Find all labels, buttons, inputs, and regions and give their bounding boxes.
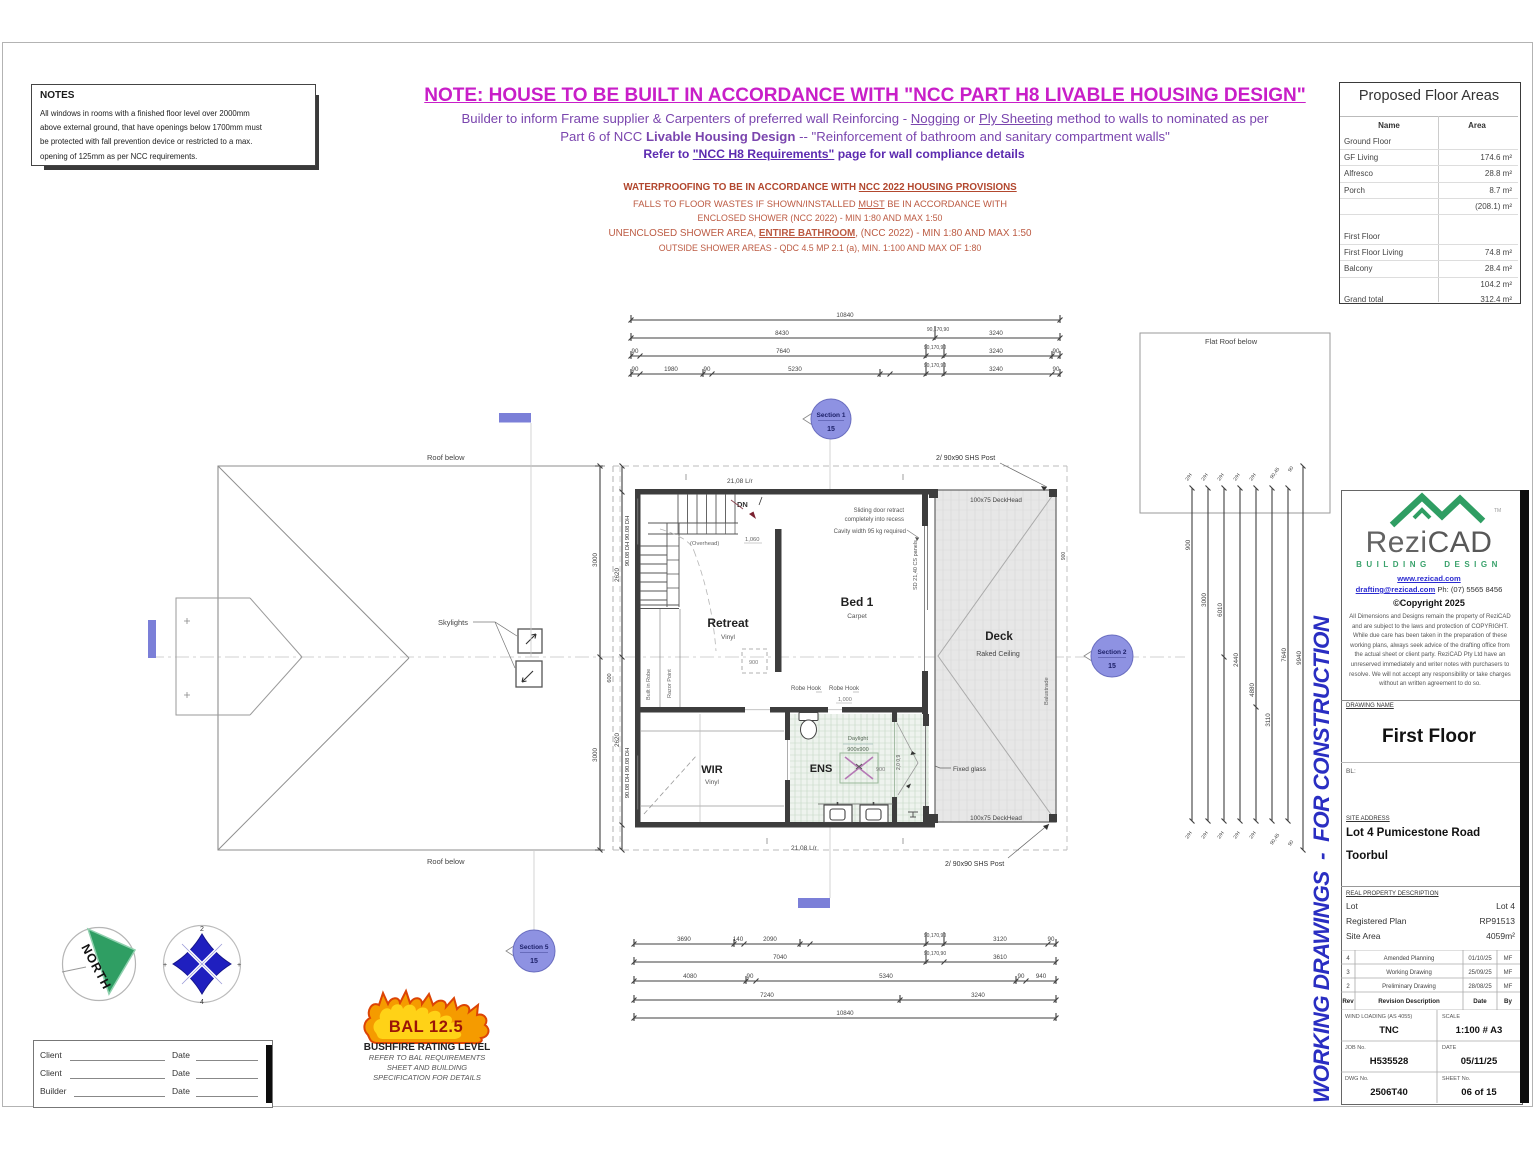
svg-text:2: 2 [200,926,204,933]
svg-text:15: 15 [530,958,538,965]
svg-text:Daylight: Daylight [848,736,869,742]
svg-text:Roof below: Roof below [427,453,465,462]
svg-text:90,45: 90,45 [1269,832,1281,846]
svg-text:Cavity width 95 kg required: Cavity width 95 kg required [834,529,906,535]
svg-text:5230: 5230 [788,366,802,373]
svg-text:90.08 DH 90.08 DH: 90.08 DH 90.08 DH [625,516,631,567]
svg-text:MF: MF [1504,970,1513,976]
svg-text:90: 90 [632,348,639,355]
svg-text:90: 90 [1053,348,1060,355]
svg-text:3610: 3610 [993,954,1007,961]
svg-text:3690: 3690 [677,936,691,943]
svg-text:1,000: 1,000 [838,697,852,703]
svg-text:4880: 4880 [1249,683,1256,697]
svg-text:completely into recess: completely into recess [845,517,904,523]
svg-text:TNC: TNC [1379,1025,1399,1036]
svg-text:1,060: 1,060 [745,537,760,543]
svg-text:10840: 10840 [836,1010,854,1017]
svg-text:Rev: Rev [1342,998,1354,1005]
svg-text:BAL 12.5: BAL 12.5 [389,1018,463,1036]
svg-text:Sliding door retract: Sliding door retract [854,508,905,514]
svg-text:2/H: 2/H [1248,830,1258,840]
svg-text:Robe Hook: Robe Hook [791,686,822,692]
svg-text:900: 900 [749,660,758,666]
svg-text:8430: 8430 [775,330,789,337]
svg-text:3240: 3240 [989,330,1003,337]
svg-text:7040: 7040 [773,954,787,961]
svg-text:4: 4 [1346,956,1350,962]
svg-text:Preliminary Drawing: Preliminary Drawing [1382,984,1436,990]
svg-text:Section 1: Section 1 [817,412,846,419]
svg-text:2/ 90x90 SHS Post: 2/ 90x90 SHS Post [936,455,995,462]
svg-text:90: 90 [747,973,754,980]
svg-text:940: 940 [1036,973,1047,980]
svg-text:By: By [1504,998,1512,1005]
svg-text:2506T40: 2506T40 [1370,1087,1408,1098]
svg-text:Robe Hook: Robe Hook [829,686,860,692]
svg-text:Balustrade: Balustrade [1044,677,1050,705]
svg-text:SD 21,40 CS panels: SD 21,40 CS panels [913,540,919,590]
svg-text:9940: 9940 [1296,651,1303,665]
svg-text:600: 600 [607,673,613,682]
svg-text:MF: MF [1504,984,1513,990]
svg-text:7640: 7640 [1281,648,1288,662]
svg-text:Skylights: Skylights [438,618,468,627]
svg-text:2/H: 2/H [1200,830,1210,840]
svg-text:3110: 3110 [1265,713,1272,727]
svg-text:7240: 7240 [760,992,774,999]
svg-text:2620: 2620 [614,733,621,747]
svg-text:WIR: WIR [701,764,722,776]
svg-text:2440: 2440 [1233,653,1240,667]
svg-text:2/H: 2/H [1232,830,1242,840]
svg-text:Deck: Deck [985,631,1013,643]
svg-text:90: 90 [1048,936,1055,943]
svg-text:SCALE: SCALE [1442,1014,1460,1020]
svg-text:900: 900 [1185,539,1192,550]
svg-text:Date: Date [1473,998,1487,1005]
svg-text:H535528: H535528 [1370,1056,1409,1067]
svg-text:DN: DN [737,500,748,509]
svg-text:Built in Robe: Built in Robe [646,669,652,700]
svg-text:90,170,90: 90,170,90 [924,363,946,369]
svg-text:90: 90 [1018,973,1025,980]
svg-text:05/11/25: 05/11/25 [1461,1056,1498,1067]
svg-text:DWG No.: DWG No. [1345,1076,1369,1082]
svg-text:10840: 10840 [836,312,854,319]
svg-text:3: 3 [1346,970,1350,976]
svg-text:90,170,90: 90,170,90 [924,933,946,939]
svg-text:Raked Ceiling: Raked Ceiling [976,651,1020,658]
svg-text:90: 90 [704,366,711,373]
svg-text:21,08 L/r: 21,08 L/r [727,478,753,485]
svg-text:+: + [163,962,167,969]
svg-text:6010: 6010 [1217,603,1224,617]
svg-text:3000: 3000 [592,748,599,762]
svg-text:4: 4 [200,999,204,1006]
svg-text:1980: 1980 [664,366,678,373]
svg-text:90: 90 [632,366,639,373]
svg-text:90,170,90: 90,170,90 [924,345,946,351]
svg-text:Section 2: Section 2 [1098,649,1127,656]
svg-text:2620: 2620 [614,568,621,582]
svg-text:3120: 3120 [993,936,1007,943]
svg-text:900: 900 [1061,552,1067,561]
svg-text:Vinyl: Vinyl [721,634,736,641]
svg-text:3000: 3000 [592,553,599,567]
svg-text:140: 140 [733,936,744,943]
svg-text:100x75 DeckHead: 100x75 DeckHead [970,815,1022,822]
svg-text:2090: 2090 [763,936,777,943]
svg-text:25/09/25: 25/09/25 [1468,970,1492,976]
svg-text:900: 900 [876,767,885,773]
svg-text:Amended Planning: Amended Planning [1384,956,1435,962]
svg-text:3000: 3000 [1201,593,1208,607]
svg-text:7640: 7640 [776,348,790,355]
svg-text:Flat Roof below: Flat Roof below [1205,337,1258,346]
svg-text:3240: 3240 [989,366,1003,373]
svg-text:Roof below: Roof below [427,857,465,866]
svg-text:100x75 DeckHead: 100x75 DeckHead [970,497,1022,504]
svg-text:15: 15 [827,426,835,433]
svg-text:90,170,90: 90,170,90 [927,327,949,333]
svg-text:MF: MF [1504,956,1513,962]
svg-text:5340: 5340 [879,973,893,980]
svg-text:90: 90 [1287,839,1295,847]
svg-text:15: 15 [1108,663,1116,670]
svg-text:06 of 15: 06 of 15 [1461,1087,1497,1098]
svg-text:Fixed glass: Fixed glass [953,766,987,773]
svg-text:3240: 3240 [971,992,985,999]
svg-text:Retreat: Retreat [707,616,748,630]
svg-text:28/08/25: 28/08/25 [1468,984,1492,990]
svg-text:Bed 1: Bed 1 [841,595,874,609]
svg-text:2/H: 2/H [1216,830,1226,840]
svg-text:WIND LOADING (AS 4055): WIND LOADING (AS 4055) [1345,1014,1412,1020]
svg-text:(Overhead): (Overhead) [690,541,719,547]
svg-text:4080: 4080 [683,973,697,980]
svg-text:2,0 0,9: 2,0 0,9 [896,754,902,770]
svg-text:90.08 DH 90.08 DH: 90.08 DH 90.08 DH [625,748,631,799]
svg-text:2: 2 [1346,984,1350,990]
svg-text:JOB No.: JOB No. [1345,1045,1366,1051]
svg-text:Razor Point: Razor Point [667,669,673,698]
svg-text:+: + [237,962,241,969]
svg-text:Revision Description: Revision Description [1378,998,1440,1005]
svg-text:2/H: 2/H [1184,830,1194,840]
svg-text:Carpet: Carpet [847,613,867,620]
svg-text:DATE: DATE [1442,1045,1457,1051]
svg-text:ENS: ENS [810,763,833,775]
svg-text:Vinyl: Vinyl [705,779,720,786]
svg-text:90,170,90: 90,170,90 [924,951,946,957]
svg-text:90: 90 [1053,366,1060,373]
svg-text:1:100 # A3: 1:100 # A3 [1456,1025,1503,1036]
svg-text:900x900: 900x900 [847,747,868,753]
svg-text:21,08 L/r: 21,08 L/r [791,845,817,852]
svg-text:3240: 3240 [989,348,1003,355]
svg-text:01/10/25: 01/10/25 [1468,956,1492,962]
svg-text:SHEET No.: SHEET No. [1442,1076,1471,1082]
svg-text:2/ 90x90 SHS Post: 2/ 90x90 SHS Post [945,861,1004,868]
svg-text:Section 5: Section 5 [520,944,549,951]
svg-text:Working Drawing: Working Drawing [1386,970,1432,976]
